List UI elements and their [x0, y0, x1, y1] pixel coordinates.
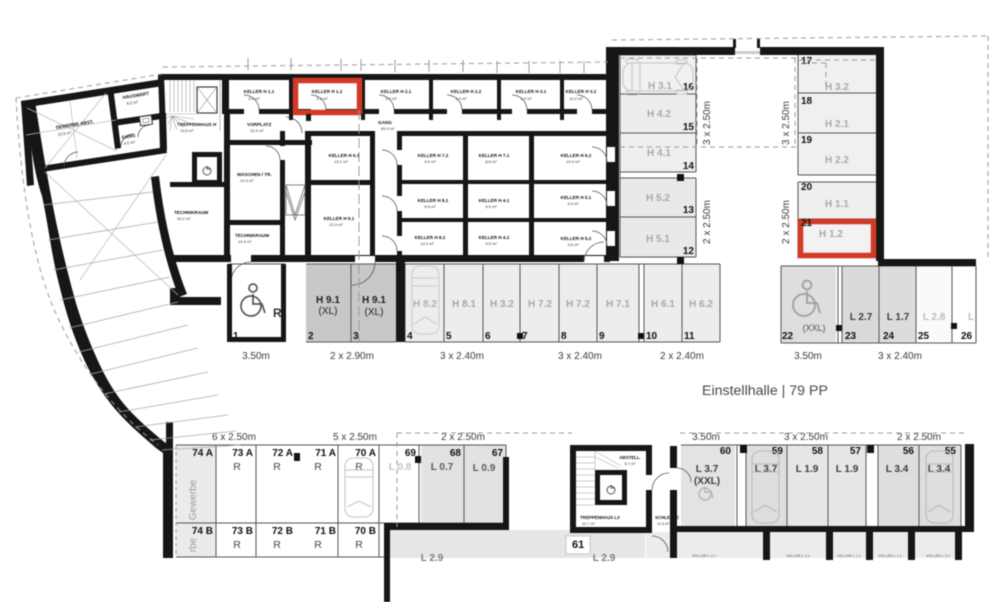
svg-text:20: 20 — [801, 182, 813, 193]
svg-text:R: R — [273, 461, 281, 473]
svg-text:3.4 m²: 3.4 m² — [455, 96, 467, 101]
svg-text:R: R — [273, 539, 281, 551]
svg-text:8.6 m²: 8.6 m² — [485, 159, 497, 164]
svg-text:2 x 2.40m: 2 x 2.40m — [660, 351, 704, 362]
svg-text:3 x 2.40m: 3 x 2.40m — [440, 351, 484, 362]
svg-text:15: 15 — [683, 122, 695, 133]
svg-text:H 3.2: H 3.2 — [490, 299, 514, 310]
svg-text:KELLER H 9.1: KELLER H 9.1 — [324, 216, 355, 221]
svg-text:L 3.4: L 3.4 — [928, 464, 951, 475]
svg-text:KELLER H 2.2: KELLER H 2.2 — [451, 89, 482, 94]
svg-text:3 x 2.50m: 3 x 2.50m — [784, 432, 828, 443]
svg-text:9: 9 — [599, 331, 605, 342]
svg-text:9.0 m²: 9.0 m² — [424, 159, 436, 164]
svg-text:12: 12 — [683, 246, 695, 257]
svg-text:74 A: 74 A — [192, 448, 213, 459]
svg-text:10.3 m²: 10.3 m² — [240, 178, 254, 183]
svg-text:TECHNIKRAUM: TECHNIKRAUM — [174, 210, 208, 215]
svg-text:9.5 m²: 9.5 m² — [485, 204, 497, 209]
svg-text:L 3.7: L 3.7 — [755, 464, 778, 475]
svg-text:KELLER H 5.2: KELLER H 5.2 — [561, 236, 592, 241]
svg-text:67: 67 — [492, 448, 504, 459]
svg-text:2 x 2.50m: 2 x 2.50m — [897, 432, 941, 443]
svg-text:11.0 m²: 11.0 m² — [569, 96, 583, 101]
svg-text:H 2.2: H 2.2 — [825, 155, 849, 166]
svg-text:74 B: 74 B — [192, 526, 213, 537]
svg-text:KELLER H 3.1: KELLER H 3.1 — [516, 89, 547, 94]
svg-text:14.6 m²: 14.6 m² — [180, 128, 194, 133]
svg-text:2 x 2.50m: 2 x 2.50m — [441, 432, 485, 443]
svg-text:8: 8 — [561, 331, 567, 342]
svg-text:5: 5 — [446, 331, 452, 342]
svg-text:3.50m: 3.50m — [794, 351, 822, 362]
svg-text:3 x 2.40m: 3 x 2.40m — [558, 351, 602, 362]
svg-text:H 3.1: H 3.1 — [648, 81, 672, 92]
svg-text:WASCHEN / TR.: WASCHEN / TR. — [237, 172, 272, 177]
svg-text:18: 18 — [801, 96, 813, 107]
svg-text:73 B: 73 B — [232, 526, 253, 537]
svg-text:L 3.7: L 3.7 — [696, 464, 719, 475]
svg-text:24: 24 — [883, 331, 895, 342]
svg-text:61: 61 — [572, 539, 584, 551]
svg-text:R: R — [314, 539, 322, 551]
svg-text:H 4.1: H 4.1 — [647, 148, 671, 159]
svg-text:KELLER H 7.2: KELLER H 7.2 — [418, 153, 449, 158]
svg-text:13: 13 — [683, 205, 695, 216]
svg-text:71 A: 71 A — [315, 448, 336, 459]
svg-text:KELLER L 3.4: KELLER L 3.4 — [786, 554, 810, 558]
svg-text:KELLER H 4.2: KELLER H 4.2 — [479, 235, 510, 240]
svg-text:6: 6 — [485, 331, 491, 342]
svg-text:L 0.7: L 0.7 — [431, 462, 454, 473]
svg-text:KELLER H 3.2: KELLER H 3.2 — [566, 89, 597, 94]
svg-text:(XL): (XL) — [319, 306, 338, 317]
svg-text:19: 19 — [801, 135, 813, 146]
svg-text:L 1.7: L 1.7 — [887, 312, 910, 323]
svg-text:68: 68 — [450, 448, 462, 459]
svg-text:3.4 m²: 3.4 m² — [520, 96, 532, 101]
svg-text:3.6 m²: 3.6 m² — [567, 242, 579, 247]
svg-text:L 1.9: L 1.9 — [796, 464, 819, 475]
svg-text:2 x 2.90m: 2 x 2.90m — [330, 351, 374, 362]
svg-text:69: 69 — [405, 448, 417, 459]
svg-text:L 0.8: L 0.8 — [389, 462, 412, 473]
svg-text:KELLER H 5.1: KELLER H 5.1 — [561, 195, 592, 200]
svg-text:3 x 2.50m: 3 x 2.50m — [702, 101, 713, 145]
svg-text:L 2.9: L 2.9 — [593, 553, 616, 564]
svg-text:VORPLATZ: VORPLATZ — [247, 122, 272, 127]
svg-text:71 B: 71 B — [315, 526, 336, 537]
svg-text:4: 4 — [407, 331, 413, 342]
svg-text:KELLER L 3.4: KELLER L 3.4 — [926, 554, 950, 558]
svg-text:13.3 m²: 13.3 m² — [420, 241, 434, 246]
svg-text:H 7.2: H 7.2 — [566, 299, 590, 310]
svg-text:3.50m: 3.50m — [692, 432, 720, 443]
svg-text:H 9.1: H 9.1 — [362, 295, 386, 306]
svg-text:9.5 m²: 9.5 m² — [424, 204, 436, 209]
svg-text:R: R — [273, 306, 282, 320]
svg-text:KELLER H 6.2: KELLER H 6.2 — [561, 153, 592, 158]
svg-text:ABSTELL.: ABSTELL. — [619, 455, 640, 460]
svg-text:KELLER L 3.7: KELLER L 3.7 — [692, 554, 716, 558]
svg-text:10.4 m²: 10.4 m² — [250, 128, 264, 133]
svg-text:26.2 m²: 26.2 m² — [177, 216, 191, 221]
svg-text:KELLER H 2.1: KELLER H 2.1 — [381, 89, 412, 94]
svg-text:3.4 m²: 3.4 m² — [248, 96, 260, 101]
svg-text:72 B: 72 B — [272, 526, 293, 537]
svg-text:rbe: rbe — [188, 537, 199, 552]
svg-text:21: 21 — [801, 218, 813, 229]
svg-text:3.3 m²: 3.3 m² — [567, 201, 579, 206]
svg-text:TREPPENHAUS H: TREPPENHAUS H — [177, 122, 217, 127]
svg-text:60: 60 — [720, 446, 732, 457]
svg-text:17: 17 — [801, 56, 813, 67]
svg-text:10.7 m²: 10.7 m² — [582, 522, 596, 526]
svg-text:KELLER H 4.1: KELLER H 4.1 — [479, 198, 510, 203]
svg-text:GANG: GANG — [378, 120, 392, 125]
svg-text:3 x 2.50m: 3 x 2.50m — [781, 101, 792, 145]
svg-text:72 A: 72 A — [272, 448, 293, 459]
svg-text:R: R — [355, 461, 363, 473]
svg-text:6.7 m²: 6.7 m² — [625, 462, 636, 466]
svg-text:KELLER H 8.1: KELLER H 8.1 — [418, 198, 449, 203]
svg-text:H 3.2: H 3.2 — [825, 82, 849, 93]
svg-text:57: 57 — [850, 446, 862, 457]
svg-text:2 x 2.50m: 2 x 2.50m — [702, 200, 713, 244]
svg-text:R: R — [233, 461, 241, 473]
svg-text:H 6.2: H 6.2 — [689, 299, 713, 310]
svg-text:KELLER L 1.2: KELLER L 1.2 — [878, 554, 902, 558]
svg-text:26: 26 — [961, 331, 973, 342]
svg-text:H 4.2: H 4.2 — [647, 109, 671, 120]
svg-text:KELLER H 1.2: KELLER H 1.2 — [312, 89, 343, 94]
svg-text:L 1.9: L 1.9 — [836, 464, 859, 475]
svg-text:11: 11 — [684, 331, 695, 342]
svg-text:60.4 m²: 60.4 m² — [381, 126, 395, 131]
svg-text:22: 22 — [782, 331, 794, 342]
svg-text:Einstellhalle | 79 PP: Einstellhalle | 79 PP — [702, 383, 828, 399]
svg-text:L 2.8: L 2.8 — [923, 312, 946, 323]
svg-text:25: 25 — [918, 331, 930, 342]
svg-text:L 0.9: L 0.9 — [473, 463, 496, 474]
svg-text:(XXL): (XXL) — [694, 476, 720, 487]
svg-text:3.50m: 3.50m — [242, 351, 270, 362]
svg-text:L: L — [968, 312, 974, 323]
svg-text:6 x 2.50m: 6 x 2.50m — [212, 432, 256, 443]
svg-text:R: R — [233, 539, 241, 551]
svg-text:H 7.1: H 7.1 — [606, 299, 630, 310]
svg-text:3: 3 — [353, 331, 359, 342]
svg-text:H 7.2: H 7.2 — [528, 299, 552, 310]
svg-text:70 A: 70 A — [355, 448, 376, 459]
svg-text:70 B: 70 B — [355, 526, 376, 537]
svg-text:H 5.2: H 5.2 — [646, 193, 670, 204]
svg-text:L 3.4: L 3.4 — [886, 464, 909, 475]
svg-text:H 6.1: H 6.1 — [651, 299, 675, 310]
svg-text:5 x 2.50m: 5 x 2.50m — [333, 432, 377, 443]
svg-text:KELLER H 8.2: KELLER H 8.2 — [415, 235, 446, 240]
svg-text:SCHLEUSE: SCHLEUSE — [655, 515, 679, 520]
svg-text:H 1.1: H 1.1 — [825, 199, 849, 210]
svg-text:10: 10 — [646, 331, 658, 342]
svg-text:H 9.1: H 9.1 — [316, 295, 340, 306]
svg-text:H 8.1: H 8.1 — [452, 299, 476, 310]
svg-text:(XXL): (XXL) — [802, 323, 825, 333]
svg-text:H 8.2: H 8.2 — [413, 299, 437, 310]
svg-text:TECHNIKRAUM: TECHNIKRAUM — [235, 233, 269, 238]
svg-text:73 A: 73 A — [232, 448, 253, 459]
svg-text:KELLER H 7.1: KELLER H 7.1 — [479, 153, 510, 158]
svg-text:L 2.7: L 2.7 — [850, 312, 873, 323]
svg-text:2 x 2.50m: 2 x 2.50m — [781, 200, 792, 244]
svg-text:R: R — [355, 539, 363, 551]
svg-text:2: 2 — [308, 331, 314, 342]
svg-text:L 2.9: L 2.9 — [421, 553, 444, 564]
svg-text:R: R — [314, 461, 322, 473]
svg-text:10.0 m²: 10.0 m² — [566, 159, 580, 164]
svg-text:H 2.1: H 2.1 — [825, 119, 849, 130]
svg-text:(XL): (XL) — [365, 307, 384, 318]
svg-text:58: 58 — [812, 446, 824, 457]
svg-text:10.3 m²: 10.3 m² — [238, 239, 252, 244]
svg-text:21.9 m²: 21.9 m² — [329, 222, 343, 227]
svg-text:KELLER H 1.1: KELLER H 1.1 — [244, 89, 275, 94]
svg-text:3 x 2.40m: 3 x 2.40m — [878, 351, 922, 362]
svg-text:3.4 m²: 3.4 m² — [385, 96, 397, 101]
svg-text:KELLER L 1.1: KELLER L 1.1 — [837, 554, 861, 558]
svg-text:9.5 m²: 9.5 m² — [485, 241, 497, 246]
svg-text:H 1.2: H 1.2 — [819, 229, 843, 240]
svg-text:23: 23 — [845, 331, 857, 342]
svg-text:3.4 m²: 3.4 m² — [316, 96, 328, 101]
svg-text:10.1 m²: 10.1 m² — [334, 159, 348, 164]
svg-text:KELLER H 6.1: KELLER H 6.1 — [329, 153, 360, 158]
svg-text:56: 56 — [903, 446, 915, 457]
svg-text:1: 1 — [233, 331, 239, 342]
svg-text:11.9 m²: 11.9 m² — [657, 522, 670, 526]
svg-text:H 5.1: H 5.1 — [646, 234, 670, 245]
svg-text:Gewerbe: Gewerbe — [188, 479, 199, 520]
svg-text:TREPPENHAUS L3: TREPPENHAUS L3 — [580, 515, 620, 520]
svg-text:14: 14 — [683, 161, 695, 172]
